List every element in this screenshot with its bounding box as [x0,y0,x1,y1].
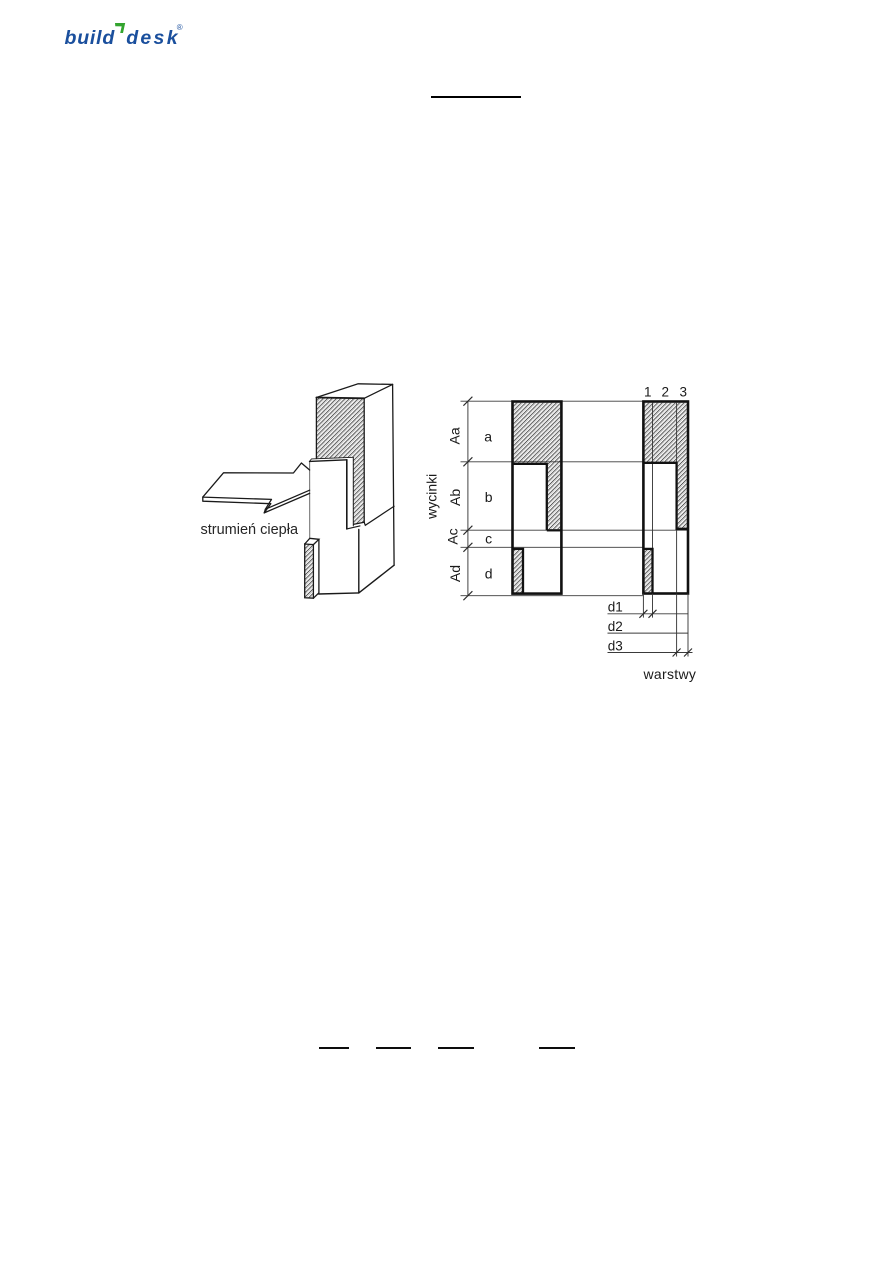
svg-text:Ab: Ab [447,489,463,506]
svg-text:d3: d3 [608,638,623,653]
svg-text:d1: d1 [608,600,623,615]
svg-text:Ad: Ad [447,565,463,582]
svg-text:b: b [485,489,493,505]
svg-text:warstwy: warstwy [643,666,697,682]
svg-text:wycinki: wycinki [424,474,440,520]
svg-text:1: 1 [644,384,652,399]
svg-text:strumień ciepła: strumień ciepła [201,522,299,538]
svg-text:c: c [485,530,492,546]
svg-text:Aa: Aa [447,427,463,444]
svg-text:2: 2 [662,384,670,399]
svg-text:Ac: Ac [444,528,460,544]
svg-text:a: a [484,429,492,445]
svg-text:3: 3 [679,384,687,399]
svg-text:d: d [485,566,493,582]
svg-text:d2: d2 [608,619,623,634]
